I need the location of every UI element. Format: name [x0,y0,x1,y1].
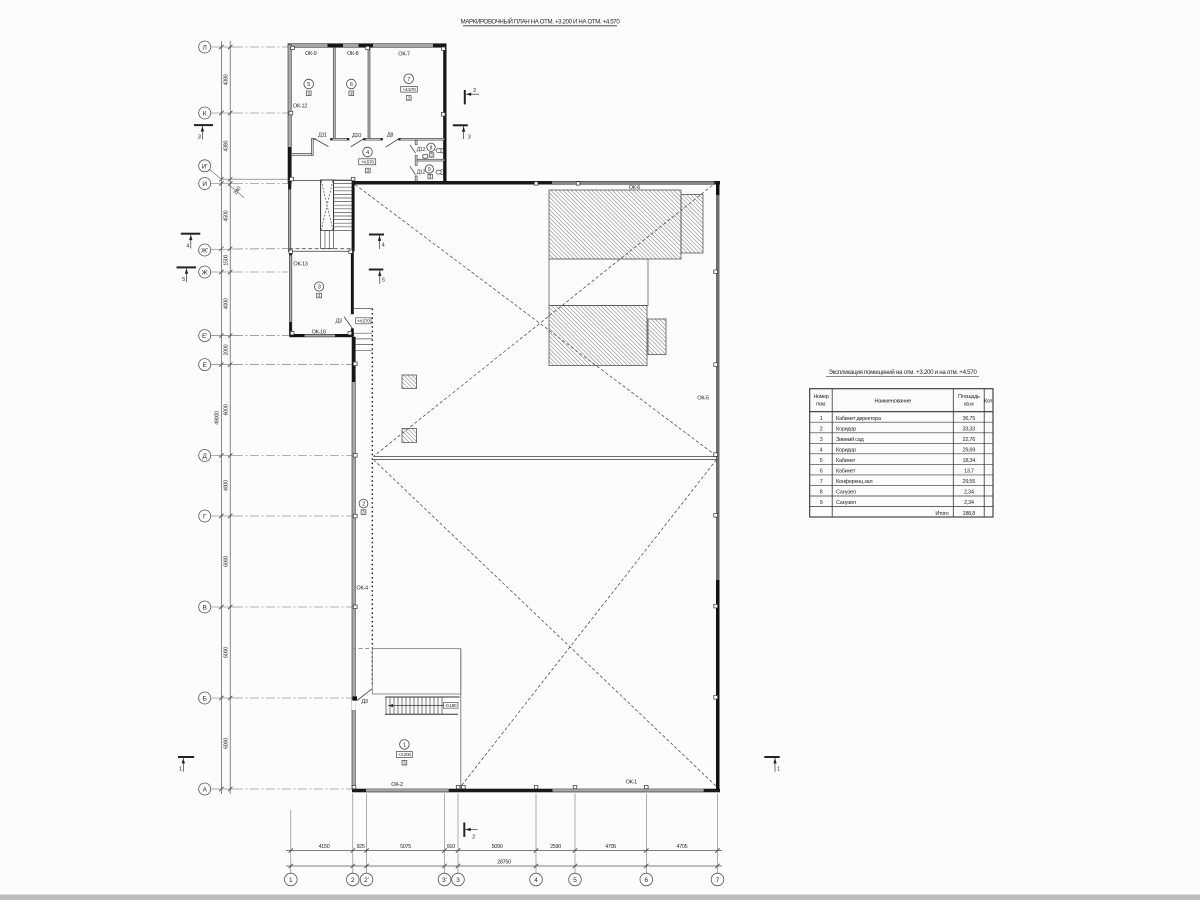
svg-text:В: В [203,605,207,612]
svg-text:36,75: 36,75 [963,416,976,422]
svg-text:К: К [203,111,207,118]
svg-text:5075: 5075 [400,844,411,850]
svg-text:3: 3 [820,437,823,443]
svg-text:7: 7 [407,77,410,83]
svg-text:4705: 4705 [677,844,688,850]
svg-text:925: 925 [356,844,364,850]
svg-text:Коридор: Коридор [836,447,856,453]
svg-text:6: 6 [350,82,353,88]
svg-text:2: 2 [362,502,365,508]
svg-text:5: 5 [820,458,823,464]
svg-text:13,7: 13,7 [964,469,974,475]
svg-text:Д12: Д12 [417,147,426,153]
svg-text:Д: Д [203,453,208,460]
svg-text:2: 2 [351,877,355,884]
svg-text:МАРКИРОВОЧНЫЙ ПЛАН НА ОТМ. +3.: МАРКИРОВОЧНЫЙ ПЛАН НА ОТМ. +3.200 И НА О… [461,18,621,26]
svg-text:ОК-6: ОК-6 [629,185,641,191]
svg-text:Кол.: Кол. [984,399,993,405]
svg-text:Коридор: Коридор [836,426,856,432]
svg-text:ОК-8: ОК-8 [347,51,359,57]
svg-text:28750: 28750 [497,859,511,865]
svg-text:Д3: Д3 [335,319,341,325]
svg-text:ОК-5: ОК-5 [697,396,709,402]
svg-text:Наименование: Наименование [874,399,911,405]
svg-text:+3.200: +3.200 [398,752,412,758]
svg-text:7: 7 [716,877,720,884]
svg-text:Кабинет директора: Кабинет директора [836,416,882,422]
svg-text:И': И' [202,163,208,170]
svg-text:3: 3 [456,877,460,884]
svg-text:5090: 5090 [492,844,503,850]
svg-text:Санузел: Санузел [836,500,856,506]
svg-text:1: 1 [289,877,293,884]
svg-text:4150: 4150 [319,844,330,850]
svg-text:4500: 4500 [224,210,230,221]
svg-text:1500: 1500 [224,255,230,266]
svg-text:29,55: 29,55 [963,479,976,485]
svg-text:9: 9 [820,500,823,506]
svg-text:Д3: Д3 [361,699,367,705]
svg-text:6000: 6000 [224,647,230,658]
svg-text:5: 5 [382,278,385,284]
svg-text:4: 4 [382,243,385,249]
svg-text:Е': Е' [202,333,207,340]
svg-text:6000: 6000 [224,738,230,749]
svg-text:29,69: 29,69 [963,447,976,453]
svg-text:4: 4 [366,150,369,156]
svg-text:ОК-4: ОК-4 [356,586,368,592]
svg-text:Д11: Д11 [318,133,327,139]
svg-text:4: 4 [820,447,823,453]
svg-text:Ж: Ж [202,270,208,277]
svg-text:4380: 4380 [224,141,230,152]
svg-text:4: 4 [186,243,189,249]
svg-text:Кабинет: Кабинет [836,469,856,475]
svg-text:Конференц зал: Конференц зал [836,479,872,485]
svg-text:5: 5 [307,82,310,88]
svg-text:2': 2' [364,877,369,884]
svg-text:И: И [202,181,207,188]
svg-text:2590: 2590 [550,844,561,850]
svg-text:+4.570: +4.570 [361,160,375,166]
svg-text:Итого: Итого [935,511,948,517]
svg-text:4380: 4380 [224,74,230,85]
svg-text:2,34: 2,34 [964,490,974,496]
svg-text:5: 5 [182,277,185,283]
svg-text:Д12: Д12 [417,170,426,176]
svg-text:А: А [203,787,208,794]
svg-text:3': 3' [442,877,447,884]
svg-text:2: 2 [473,88,476,94]
svg-text:ОК-13: ОК-13 [293,261,307,267]
svg-text:ОК-2: ОК-2 [391,782,403,788]
svg-text:8: 8 [430,145,433,151]
svg-text:Ж': Ж' [201,248,208,255]
svg-text:ОК-9: ОК-9 [305,51,317,57]
svg-text:33,33: 33,33 [963,426,976,432]
svg-text:1: 1 [403,743,406,749]
svg-text:Е: Е [203,362,207,369]
svg-text:Зимний сад: Зимний сад [836,436,864,443]
svg-text:5: 5 [573,877,577,884]
svg-text:кв.м: кв.м [964,402,974,408]
svg-text:6000: 6000 [224,556,230,567]
svg-text:6: 6 [645,877,649,884]
svg-text:пом.: пом. [816,402,826,408]
svg-text:188,8: 188,8 [963,511,976,517]
svg-text:7: 7 [820,479,823,485]
svg-text:Б: Б [203,696,207,703]
svg-text:Кабинет: Кабинет [836,458,856,464]
svg-text:ОК-1: ОК-1 [626,779,638,785]
svg-text:1: 1 [820,416,823,422]
svg-text:49000: 49000 [215,411,221,425]
svg-text:+4.570: +4.570 [402,87,416,93]
svg-text:2,34: 2,34 [964,500,974,506]
svg-text:4: 4 [534,877,538,884]
svg-text:Площадь: Площадь [958,394,980,400]
svg-text:3: 3 [468,135,471,141]
svg-text:4705: 4705 [605,844,616,850]
svg-text:Д10: Д10 [352,133,361,139]
svg-text:4000: 4000 [224,480,230,491]
svg-text:8: 8 [820,490,823,496]
svg-text:Г: Г [203,514,207,521]
svg-text:3: 3 [318,285,321,291]
svg-text:1: 1 [777,767,780,773]
svg-text:22,76: 22,76 [963,437,976,443]
svg-text:3: 3 [198,135,201,141]
svg-text:910: 910 [447,844,455,850]
svg-text:1: 1 [179,767,182,773]
svg-text:ОК-7: ОК-7 [398,52,410,58]
svg-text:+4.570: +4.570 [357,319,371,325]
svg-text:Номер: Номер [813,394,828,400]
svg-text:-0.180: -0.180 [445,703,457,708]
svg-text:18,34: 18,34 [963,458,976,464]
svg-text:2: 2 [472,835,475,841]
svg-text:Л: Л [203,45,207,52]
svg-text:4000: 4000 [224,298,230,309]
svg-text:6000: 6000 [224,404,230,415]
svg-text:2000: 2000 [224,344,230,355]
svg-text:2: 2 [820,426,823,432]
svg-text:9: 9 [428,167,431,173]
svg-text:ОК-16: ОК-16 [312,329,326,335]
svg-text:ОК-12: ОК-12 [293,104,307,110]
svg-text:Экспликация помещений на отм.: Экспликация помещений на отм. +3.200 и н… [828,369,977,376]
svg-text:6: 6 [820,469,823,475]
svg-text:Д8: Д8 [387,132,393,138]
svg-text:Санузел: Санузел [836,490,856,496]
